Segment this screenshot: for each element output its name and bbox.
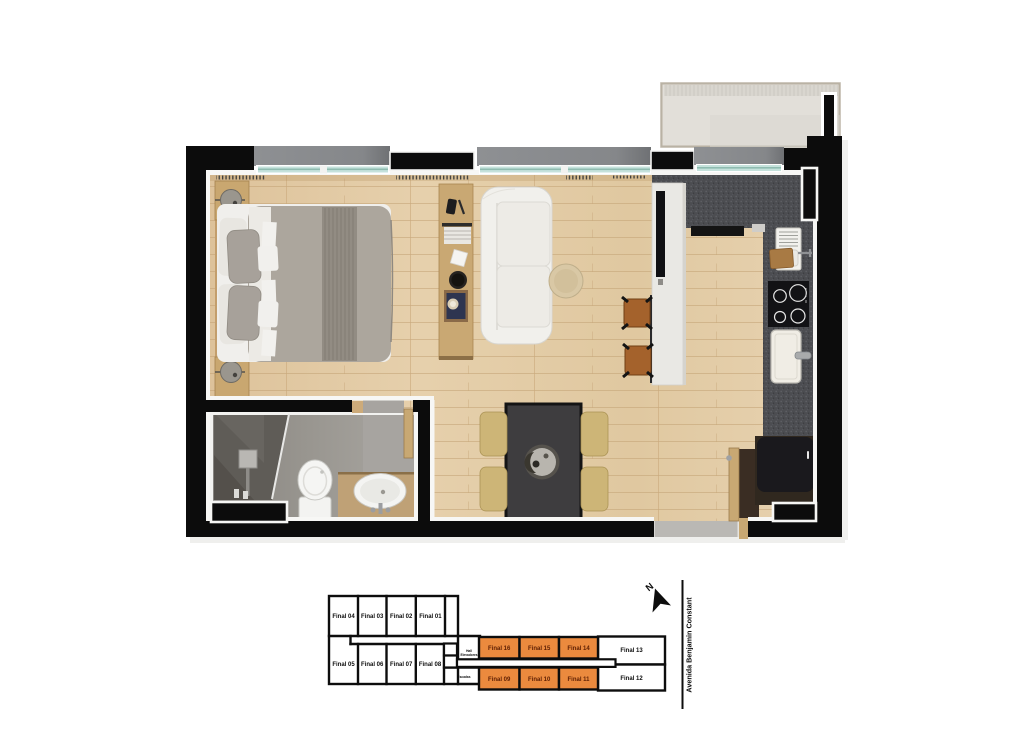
svg-text:Final 04: Final 04 [332, 614, 355, 620]
svg-text:Final 10: Final 10 [528, 677, 551, 683]
svg-text:Final 12: Final 12 [620, 676, 643, 682]
svg-text:Final 08: Final 08 [419, 662, 442, 668]
svg-text:Final 16: Final 16 [488, 646, 511, 652]
svg-text:Final 11: Final 11 [567, 677, 590, 683]
svg-text:Final 13: Final 13 [620, 648, 643, 654]
svg-text:Final 01: Final 01 [419, 614, 442, 620]
svg-text:Final 07: Final 07 [390, 662, 413, 668]
svg-text:Final 09: Final 09 [488, 677, 511, 683]
svg-text:Avenida Benjamin Constant: Avenida Benjamin Constant [685, 597, 694, 693]
svg-text:Final 02: Final 02 [390, 614, 413, 620]
svg-text:Escadas: Escadas [458, 675, 471, 679]
svg-text:Final 15: Final 15 [528, 646, 551, 652]
svg-text:Final 14: Final 14 [567, 646, 590, 652]
svg-text:Final 06: Final 06 [361, 662, 384, 668]
svg-text:Elevadores: Elevadores [460, 653, 477, 657]
svg-text:Final 05: Final 05 [332, 662, 355, 668]
svg-text:Final 03: Final 03 [361, 614, 384, 620]
